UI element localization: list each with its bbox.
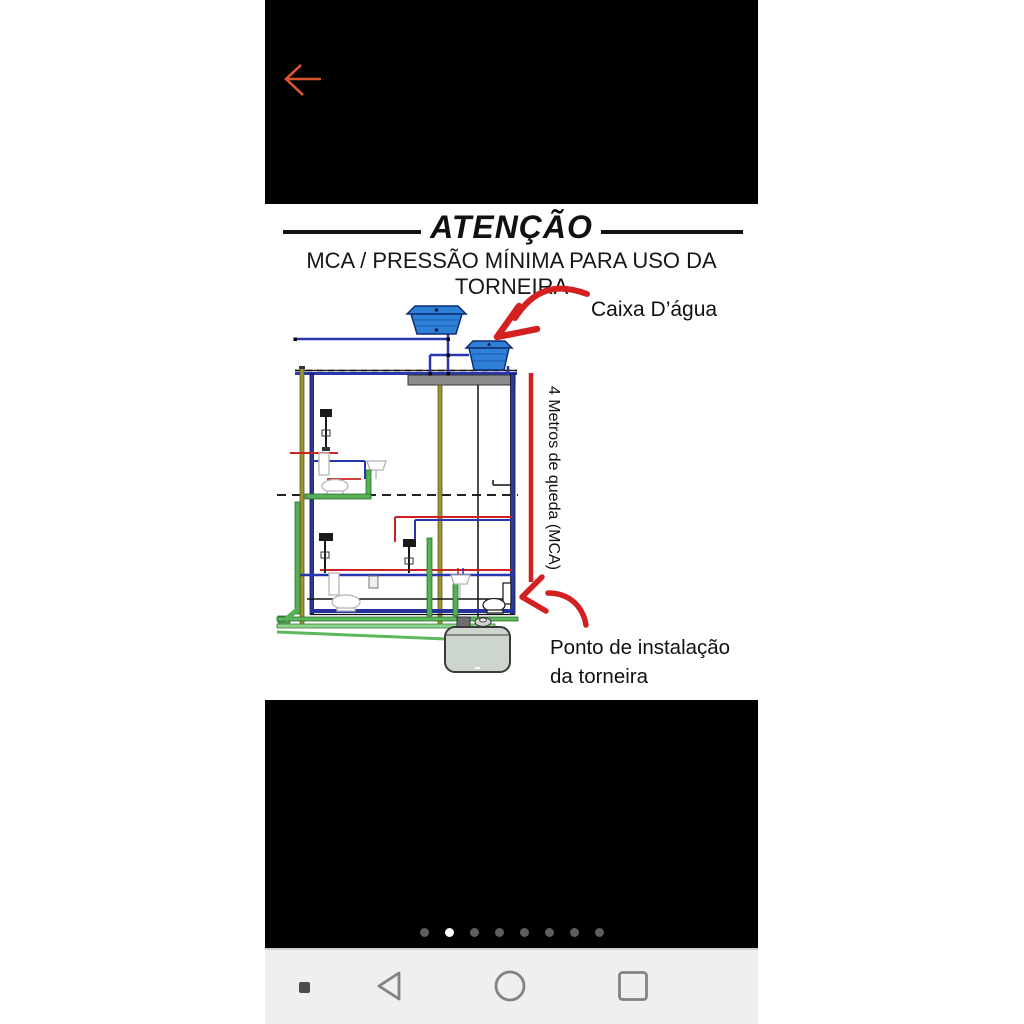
back-triangle-icon: [379, 973, 399, 999]
carousel-dot: [520, 928, 529, 937]
install-point-label-line2: da torneira: [550, 665, 649, 688]
home-circle-icon: [496, 972, 524, 1000]
carousel-dot: [495, 928, 504, 937]
upper-water-tank: [407, 306, 466, 334]
carousel-dot: [545, 928, 554, 937]
product-image[interactable]: ATENÇÃO MCA / PRESSÃO MÍNIMA PARA USO DA…: [265, 204, 758, 700]
install-point-arrow-icon: [522, 577, 586, 625]
plumbing-diagram: 4 Metros de queda (MCA) Caixa D’água Pon…: [265, 280, 758, 700]
nav-back-button[interactable]: [373, 969, 407, 1003]
water-tank-arrow-icon: [497, 289, 587, 337]
carousel-dot: [420, 928, 429, 937]
nav-home-button[interactable]: [493, 969, 527, 1003]
right-wall: [511, 374, 516, 614]
recents-square-icon: [620, 973, 647, 1000]
image-viewer-bottom-bar: [265, 700, 758, 948]
drop-height-label: 4 Metros de queda (MCA): [545, 386, 562, 570]
attention-title: ATENÇÃO: [265, 209, 758, 246]
roof-slab: [408, 375, 515, 385]
carousel-dot-active: [445, 928, 454, 937]
ground-toilet-left: [329, 573, 360, 611]
carousel-dot: [470, 928, 479, 937]
ground-shower-left: [319, 533, 333, 573]
upper-toilet: [319, 453, 348, 495]
back-button[interactable]: [279, 60, 325, 100]
sewage-slope-pipe: [277, 632, 470, 640]
screenshot-canvas: ATENÇÃO MCA / PRESSÃO MÍNIMA PARA USO DA…: [0, 0, 1024, 1024]
carousel-dots: [265, 928, 758, 937]
ground-valve: [369, 576, 378, 588]
upper-shower: [320, 409, 332, 451]
water-tank-label: Caixa D’água: [591, 298, 717, 321]
pin-square-icon: [299, 982, 310, 993]
ground-shower-mid: [403, 539, 416, 573]
carousel-dot: [595, 928, 604, 937]
lower-water-tank: [466, 341, 512, 370]
phone-screen: ATENÇÃO MCA / PRESSÃO MÍNIMA PARA USO DA…: [265, 0, 758, 1024]
install-point-label-line1: Ponto de instalação: [550, 636, 730, 659]
carousel-dot: [570, 928, 579, 937]
back-arrow-icon: [286, 65, 321, 95]
nav-recents-button[interactable]: [616, 969, 650, 1003]
android-nav-bar: [265, 948, 758, 1024]
title-dash-right: [601, 230, 743, 234]
image-viewer-top-bar: [265, 0, 758, 204]
install-point-toilet: [483, 583, 511, 613]
